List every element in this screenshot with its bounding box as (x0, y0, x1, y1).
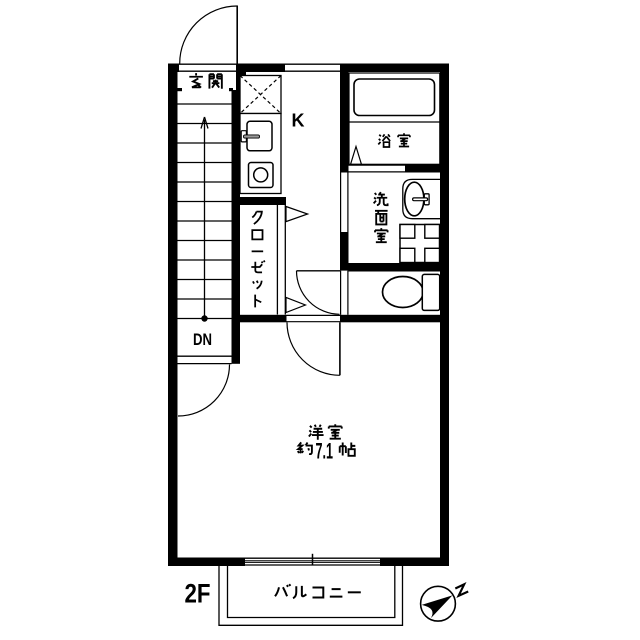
svg-text:2F: 2F (185, 578, 211, 608)
svg-text:7.1: 7.1 (316, 439, 334, 464)
svg-text:K: K (292, 111, 305, 131)
svg-text:DN: DN (193, 330, 212, 349)
